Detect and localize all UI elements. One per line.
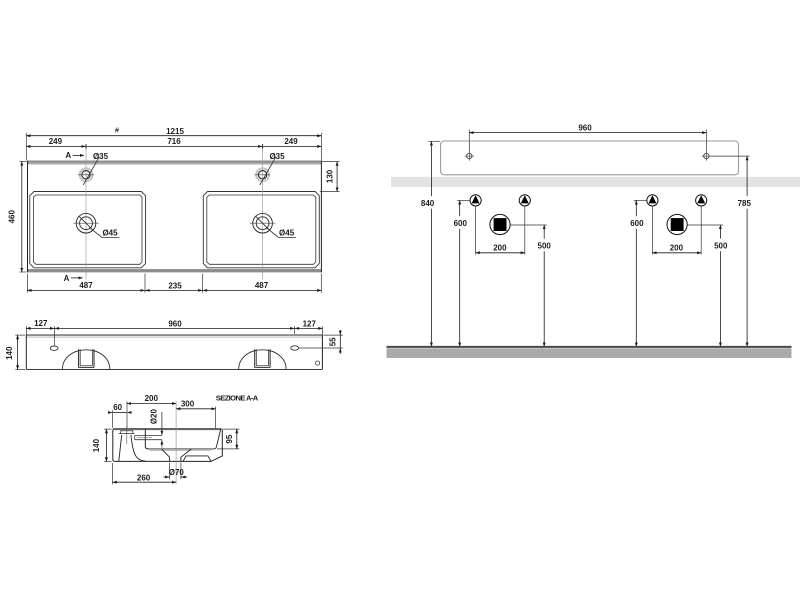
svg-text:Ø70: Ø70 xyxy=(169,468,185,477)
svg-text:960: 960 xyxy=(168,319,182,328)
svg-text:Ø35: Ø35 xyxy=(269,152,285,161)
svg-text:Ø20: Ø20 xyxy=(150,408,159,424)
svg-text:127: 127 xyxy=(303,319,317,328)
svg-text:SEZIONE A-A: SEZIONE A-A xyxy=(216,393,259,402)
svg-text:300: 300 xyxy=(181,399,195,408)
svg-text:60: 60 xyxy=(113,403,122,412)
svg-text:A: A xyxy=(65,151,71,160)
svg-text:260: 260 xyxy=(137,473,151,482)
svg-text:785: 785 xyxy=(738,199,752,208)
svg-text:716: 716 xyxy=(167,137,181,146)
svg-text:200: 200 xyxy=(493,244,507,253)
svg-text:249: 249 xyxy=(49,137,63,146)
svg-text:460: 460 xyxy=(8,209,17,223)
svg-text:235: 235 xyxy=(168,281,182,290)
svg-text:55: 55 xyxy=(328,337,337,346)
svg-text:487: 487 xyxy=(79,281,93,290)
svg-text:500: 500 xyxy=(538,241,552,250)
svg-text:Ø45: Ø45 xyxy=(279,229,295,238)
svg-text:95: 95 xyxy=(225,434,234,443)
svg-text:130: 130 xyxy=(326,169,335,183)
svg-text:1215: 1215 xyxy=(166,127,184,136)
svg-text:Ø45: Ø45 xyxy=(102,229,118,238)
svg-text:127: 127 xyxy=(34,319,48,328)
svg-text:200: 200 xyxy=(670,244,684,253)
svg-text:200: 200 xyxy=(145,394,159,403)
svg-text:600: 600 xyxy=(454,219,468,228)
svg-text:Ø35: Ø35 xyxy=(93,152,109,161)
svg-text:249: 249 xyxy=(284,137,298,146)
svg-text:140: 140 xyxy=(92,438,101,452)
svg-text:500: 500 xyxy=(714,241,728,250)
svg-text:140: 140 xyxy=(5,346,14,360)
svg-text:487: 487 xyxy=(255,281,269,290)
svg-text:A: A xyxy=(64,274,70,283)
svg-text:960: 960 xyxy=(578,124,592,133)
svg-text:840: 840 xyxy=(421,199,435,208)
svg-text:600: 600 xyxy=(630,219,644,228)
